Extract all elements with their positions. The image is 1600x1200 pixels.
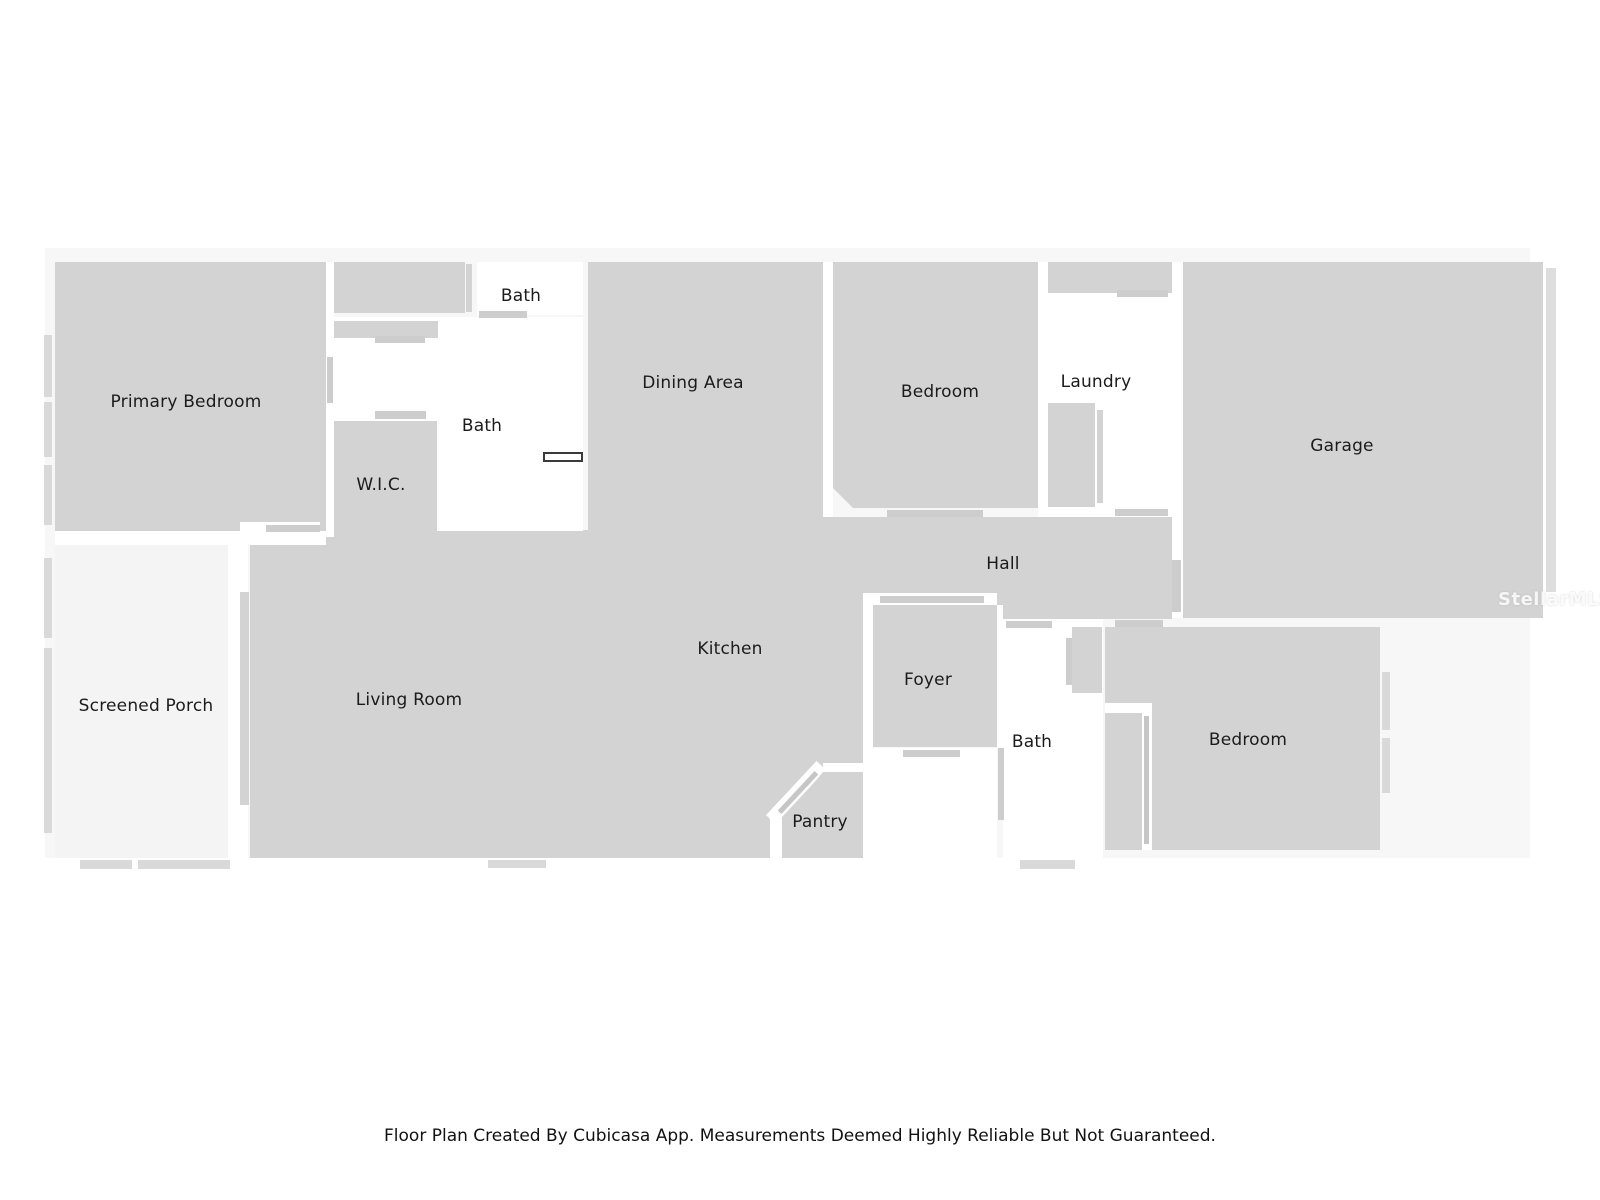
hall-bedroom-door-bar	[1115, 620, 1163, 627]
window-primary-left-1	[44, 335, 52, 397]
hall-bath-door-bar	[1006, 621, 1052, 628]
window-primary-left-3	[44, 465, 52, 525]
bath-bottom-closet	[1072, 627, 1102, 693]
room-label-pantry: Pantry	[792, 812, 848, 832]
room-label-bath-bottom: Bath	[1012, 732, 1052, 752]
pantry-left-wall-gap	[770, 816, 782, 858]
room-label-primary-bedroom: Primary Bedroom	[111, 392, 262, 412]
room-label-bedroom-top: Bedroom	[901, 382, 979, 402]
wall-gap-dining-bedroom	[823, 262, 833, 517]
wic-door-bar	[375, 411, 426, 419]
window-porch-bottom-2	[138, 860, 230, 869]
window-living-bottom	[488, 860, 546, 868]
wall-gap-kitchen-foyer	[863, 605, 873, 748]
room-label-bath-mid: Bath	[462, 416, 502, 436]
bedroom-slider-bar	[1144, 716, 1149, 844]
room-label-garage: Garage	[1310, 436, 1373, 456]
window-bedroom-right-2	[1382, 738, 1390, 793]
room-label-dining-area: Dining Area	[642, 373, 744, 393]
primary-door-bar	[266, 525, 320, 532]
footer-disclaimer: Floor Plan Created By Cubicasa App. Meas…	[0, 1126, 1600, 1146]
foyer-top-door-bar	[880, 596, 984, 603]
window-porch-left-2	[44, 648, 52, 833]
pantry-top-wall-gap	[823, 763, 863, 772]
bath-bottom-closet-bar	[1066, 638, 1072, 685]
washer-side-bar	[1097, 410, 1103, 503]
washer-dryer	[1048, 403, 1095, 507]
dining-area-floor	[588, 262, 823, 530]
wall-gap-primary-porch	[55, 531, 326, 545]
room-label-bedroom-bottom: Bedroom	[1209, 730, 1287, 750]
room-label-wic: W.I.C.	[356, 475, 405, 495]
bath-wall-bar	[327, 357, 333, 403]
room-label-screened-porch: Screened Porch	[79, 696, 214, 716]
fixture-towel-bar	[543, 452, 583, 462]
laundry-bottom-door-bar	[1115, 509, 1168, 516]
wall-gap-bedroom-laundry	[1038, 262, 1048, 517]
floor-plan: Primary BedroomBathBathW.I.C.Dining Area…	[0, 0, 1600, 1200]
entry-wall-bar	[998, 748, 1004, 820]
window-primary-left-2	[44, 402, 52, 457]
room-label-laundry: Laundry	[1061, 372, 1132, 392]
window-bath-bottom	[1020, 860, 1075, 869]
bath-divider-door-bar	[375, 336, 425, 343]
foyer-bottom-door-bar	[903, 750, 960, 757]
window-porch-bottom-1	[80, 860, 132, 869]
garage-hall-door-bar	[1172, 560, 1181, 612]
primary-closet-floor	[334, 262, 465, 313]
laundry-top-door-bar	[1117, 290, 1168, 297]
window-bedroom-right-1	[1382, 672, 1390, 730]
bedroom-top-door-bar	[887, 510, 983, 517]
porch-living-wall-bar	[240, 592, 249, 805]
room-label-hall: Hall	[986, 554, 1019, 574]
laundry-closet-floor	[1048, 262, 1172, 293]
window-porch-left-1	[44, 558, 52, 638]
room-label-living-room: Living Room	[356, 690, 463, 710]
stellar-mls-watermark: StellarMLS	[1498, 589, 1600, 610]
garage-right-wall-strip	[1546, 268, 1556, 592]
closet-door-bar	[479, 311, 527, 318]
entry-floor	[863, 748, 997, 858]
closet-side-wall	[466, 264, 472, 312]
room-label-bath-top: Bath	[501, 286, 541, 306]
room-label-foyer: Foyer	[904, 670, 952, 690]
room-label-kitchen: Kitchen	[697, 639, 762, 659]
